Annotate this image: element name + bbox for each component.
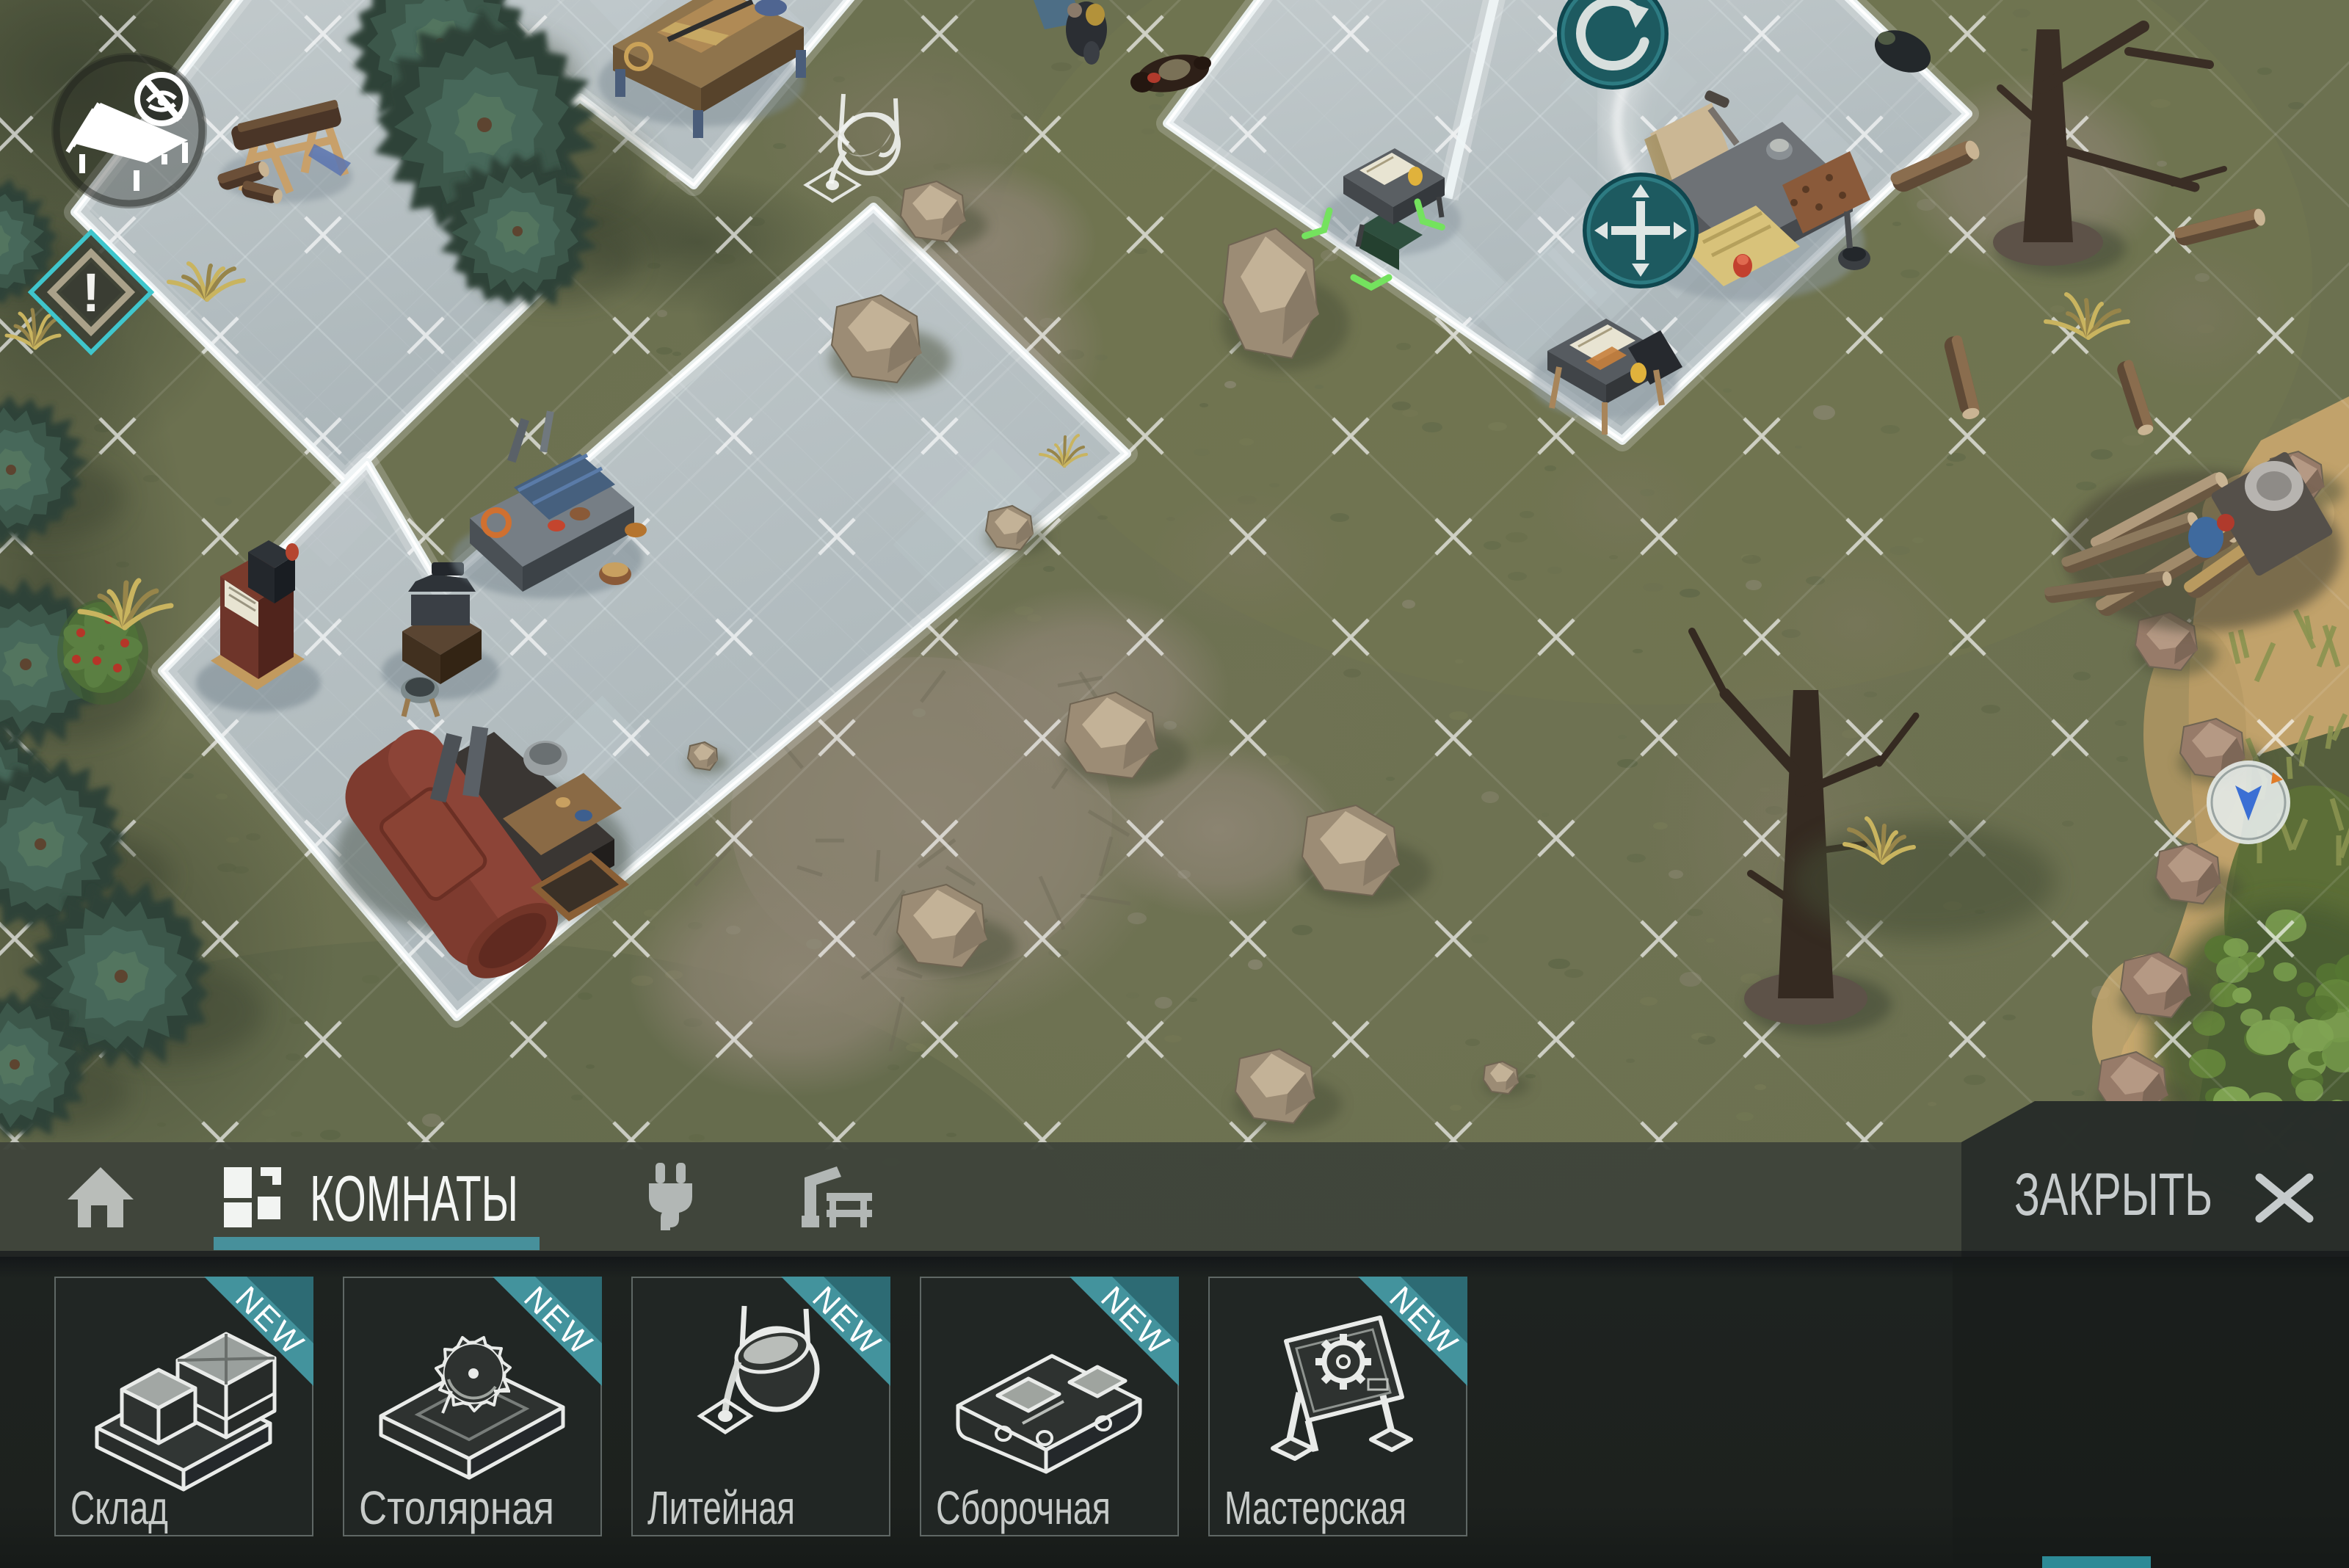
svg-text:Литейная: Литейная: [647, 1481, 795, 1534]
svg-text:Сборочная: Сборочная: [936, 1481, 1111, 1534]
svg-text:!: !: [82, 262, 101, 323]
svg-text:Столярная: Столярная: [359, 1481, 554, 1534]
svg-text:КОМНАТЫ: КОМНАТЫ: [310, 1162, 518, 1235]
svg-text:Склад: Склад: [70, 1481, 168, 1534]
svg-text:Мастерская: Мастерская: [1224, 1481, 1406, 1534]
svg-text:ЗАКРЫТЬ: ЗАКРЫТЬ: [2014, 1161, 2212, 1228]
